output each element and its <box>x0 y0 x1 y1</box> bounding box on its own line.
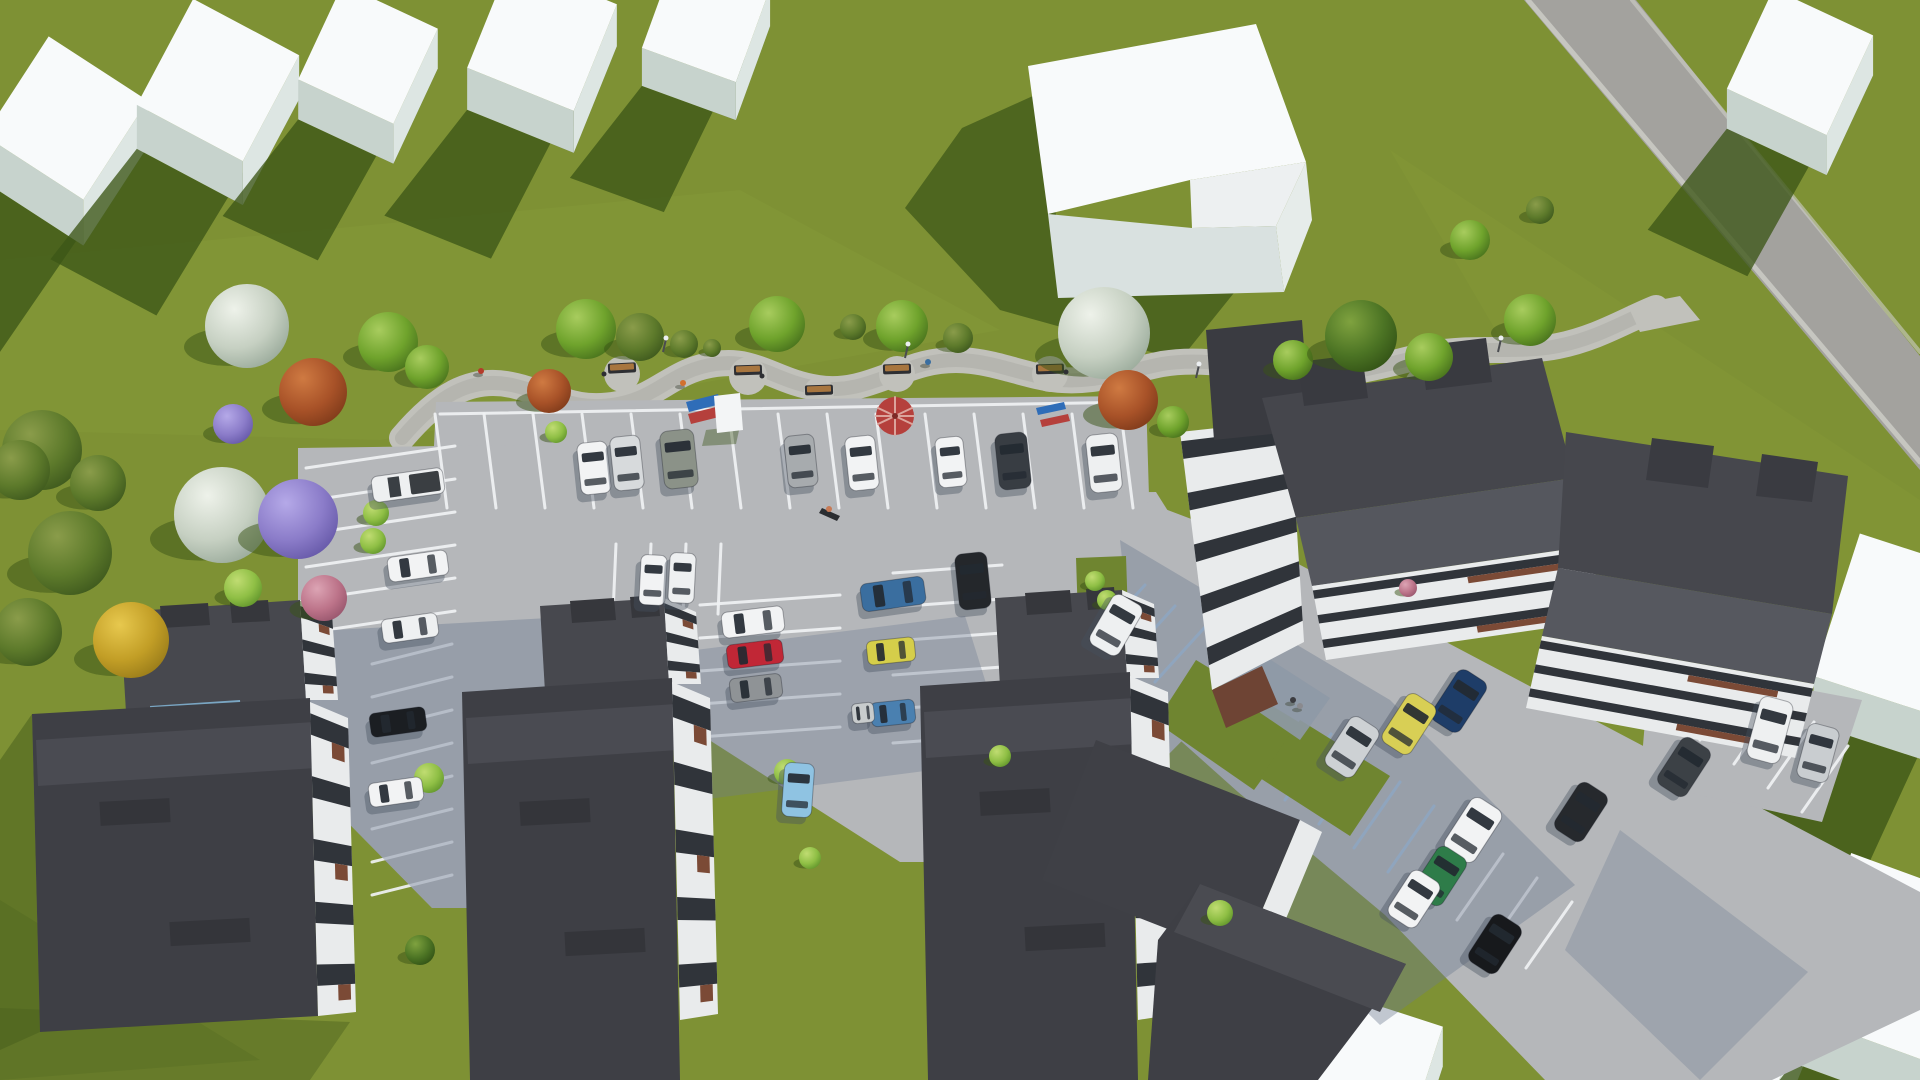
car <box>989 431 1032 498</box>
lightgreen-tree <box>545 421 567 443</box>
olive-tree <box>840 314 866 340</box>
lightgreen-tree <box>360 528 386 554</box>
lightgreen-tree <box>989 745 1011 767</box>
window-band <box>677 897 716 920</box>
green-tree <box>1273 340 1313 380</box>
green-tree <box>1450 220 1490 260</box>
green-tree <box>1157 406 1189 438</box>
green-tree <box>1405 333 1453 381</box>
pink-tree <box>301 575 347 621</box>
brick-accent <box>323 685 334 693</box>
aerial-render-viewport <box>0 0 1920 1080</box>
lamp-post <box>664 336 669 341</box>
lamp-post <box>1499 336 1504 341</box>
car <box>662 552 696 611</box>
lamp-post <box>906 342 911 347</box>
green-tree <box>405 345 449 389</box>
green-tree <box>749 296 805 352</box>
car <box>633 554 667 613</box>
silver-tree <box>205 284 289 368</box>
brick-accent <box>1144 665 1155 672</box>
lightgreen-tree <box>799 847 821 869</box>
bench <box>805 385 833 396</box>
bench <box>734 365 762 376</box>
lightgreen-tree <box>1085 571 1105 591</box>
car <box>1080 432 1124 501</box>
olive-tree <box>1526 196 1554 224</box>
brick-accent <box>700 984 713 1002</box>
person <box>1297 703 1303 709</box>
window-band <box>317 964 356 986</box>
olive-tree <box>28 511 112 595</box>
person <box>478 368 484 374</box>
olive-tree <box>670 330 698 358</box>
bench <box>883 364 911 375</box>
darkgreen-tree <box>405 935 435 965</box>
window-band <box>679 962 718 987</box>
context-building-large <box>1028 24 1312 298</box>
window-band <box>315 902 354 925</box>
pink-tree <box>1399 579 1417 597</box>
green-tree <box>876 300 928 352</box>
rust-tree <box>1098 370 1158 430</box>
olive-tree <box>703 339 721 357</box>
car <box>604 435 645 499</box>
brick-accent <box>335 864 348 881</box>
person <box>1290 697 1296 703</box>
brick-accent <box>697 855 710 873</box>
brick-accent <box>338 984 351 1000</box>
bench <box>608 362 636 373</box>
car <box>654 428 700 497</box>
rust-tree <box>527 369 571 413</box>
lamp-post <box>1197 362 1202 367</box>
site-plan-3d-render <box>0 0 1920 1080</box>
yellow-tree <box>93 602 169 678</box>
lightgreen-tree <box>224 569 262 607</box>
person <box>680 380 686 386</box>
olive-tree <box>616 313 664 361</box>
olive-tree <box>70 455 126 511</box>
silver-tree <box>1058 287 1150 379</box>
car <box>778 434 819 496</box>
car <box>861 637 917 673</box>
lightgreen-tree <box>1207 900 1233 926</box>
person <box>925 359 931 365</box>
olive-tree <box>943 323 973 353</box>
rust-tree <box>279 358 347 426</box>
darkgreen-tree <box>1325 300 1397 372</box>
car <box>929 436 968 496</box>
brick-accent <box>686 671 697 678</box>
car <box>776 762 815 825</box>
car <box>839 435 880 499</box>
green-tree <box>1504 294 1556 346</box>
purple-tree <box>213 404 253 444</box>
car <box>949 551 992 618</box>
purple-tree <box>258 479 338 559</box>
